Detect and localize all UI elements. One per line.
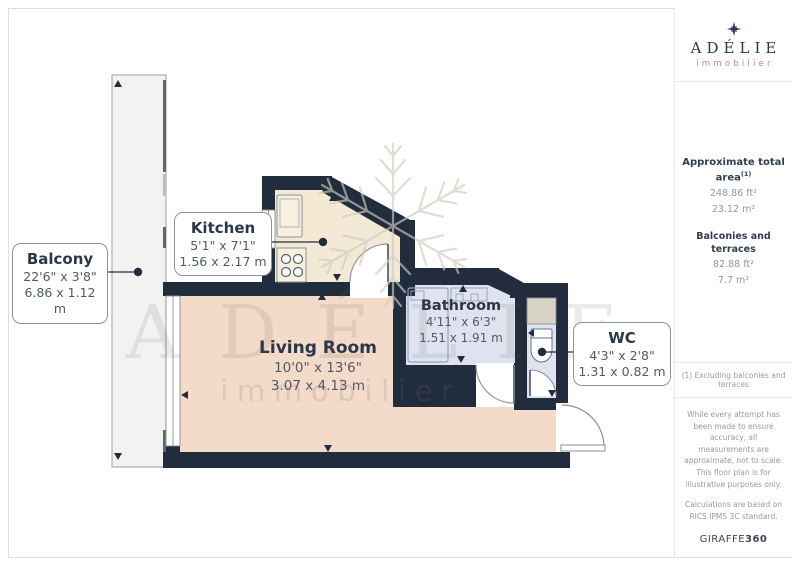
bathroom-metric: 1.51 x 1.91 m	[398, 331, 524, 347]
kitchen-imperial: 5'1" x 7'1"	[179, 238, 267, 254]
bathroom-label: Bathroom 4'11" x 6'3" 1.51 x 1.91 m	[398, 297, 524, 346]
living-room-name: Living Room	[238, 338, 398, 359]
balcony-name: Balcony	[17, 250, 103, 269]
living-room-imperial: 10'0" x 13'6"	[238, 359, 398, 377]
kitchen-label: Kitchen 5'1" x 7'1" 1.56 x 2.17 m	[174, 212, 272, 276]
legal-disclaimer: While every attempt has been made to ens…	[675, 398, 792, 557]
floorplan-page: ADÉLIE immobilier Balcony 22'6" x 3'8" 6…	[0, 0, 800, 566]
balconies-area-ft: 82.88 ft²	[713, 258, 754, 272]
standard-text: Calculations are based on RICS IPMS 3C s…	[684, 499, 783, 522]
kitchen-metric: 1.56 x 2.17 m	[179, 254, 267, 270]
wc-name: WC	[578, 329, 666, 348]
toilet	[531, 329, 552, 338]
agency-logo: ADÉLIE immobilier	[675, 8, 792, 82]
wc-metric: 1.31 x 0.82 m	[578, 364, 666, 380]
north-star-icon	[726, 21, 742, 37]
agency-name: ADÉLIE	[686, 39, 782, 57]
hallway-floor	[393, 407, 556, 452]
total-area-m: 23.12 m²	[712, 203, 755, 217]
disclaimer-text: While every attempt has been made to ens…	[684, 409, 783, 490]
kitchen-hob	[277, 248, 306, 282]
wc-counter	[527, 298, 556, 324]
balcony-imperial: 22'6" x 3'8"	[17, 269, 103, 285]
info-sidebar: ADÉLIE immobilier Approximate total area…	[674, 8, 792, 557]
balcony-label: Balcony 22'6" x 3'8" 6.86 x 1.12 m	[12, 243, 108, 324]
footnote-ref: (1)	[741, 170, 751, 178]
bathroom-imperial: 4'11" x 6'3"	[398, 315, 524, 331]
area-summary: Approximate total area(1) 248.86 ft² 23.…	[675, 82, 792, 363]
living-room-metric: 3.07 x 4.13 m	[238, 377, 398, 395]
kitchen-name: Kitchen	[179, 219, 267, 238]
balcony-metric: 6.86 x 1.12 m	[17, 285, 103, 318]
balconies-area-label: Balconies and terraces	[675, 230, 792, 257]
area-footnote: (1) Excluding balconies and terraces	[675, 363, 792, 398]
total-area-label: Approximate total area(1)	[675, 156, 792, 185]
balconies-area-m: 7.7 m²	[718, 274, 749, 288]
kitchen-sink	[277, 195, 302, 237]
agency-tagline: immobilier	[693, 59, 773, 69]
giraffe360-brand: GIRAFFE360	[684, 532, 783, 548]
wc-imperial: 4'3" x 2'8"	[578, 348, 666, 364]
entry-door-leaf	[561, 445, 605, 451]
total-area-ft: 248.86 ft²	[710, 187, 757, 201]
bathroom-name: Bathroom	[398, 297, 524, 315]
wc-label: WC 4'3" x 2'8" 1.31 x 0.82 m	[573, 322, 671, 386]
living-room-label: Living Room 10'0" x 13'6" 3.07 x 4.13 m	[238, 338, 398, 396]
